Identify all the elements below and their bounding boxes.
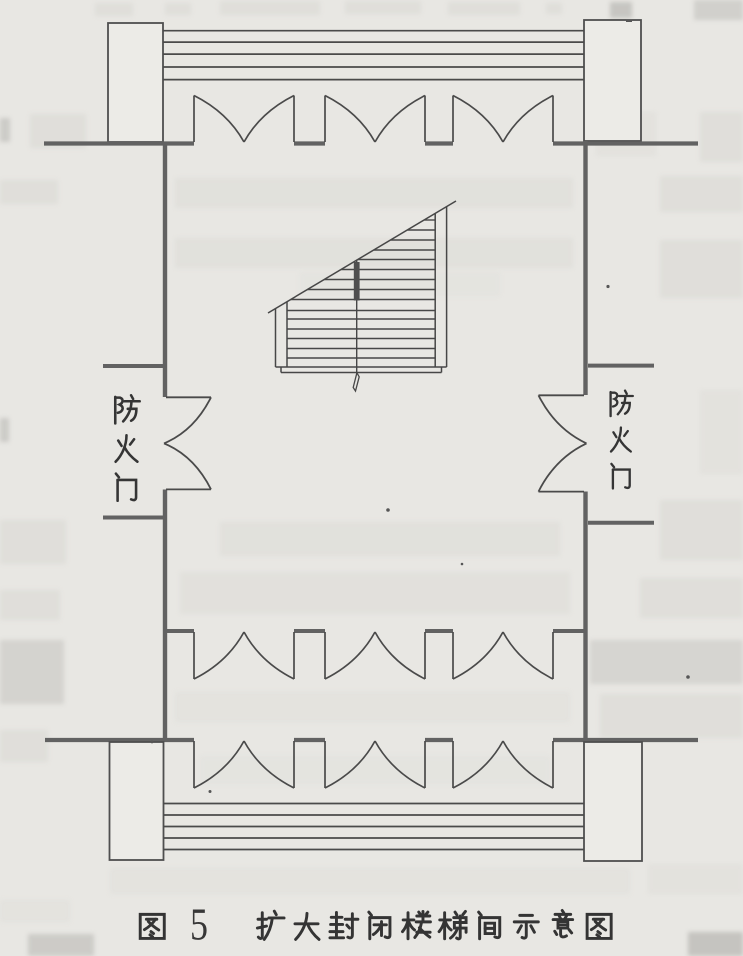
svg-text:5: 5 [190,900,208,950]
